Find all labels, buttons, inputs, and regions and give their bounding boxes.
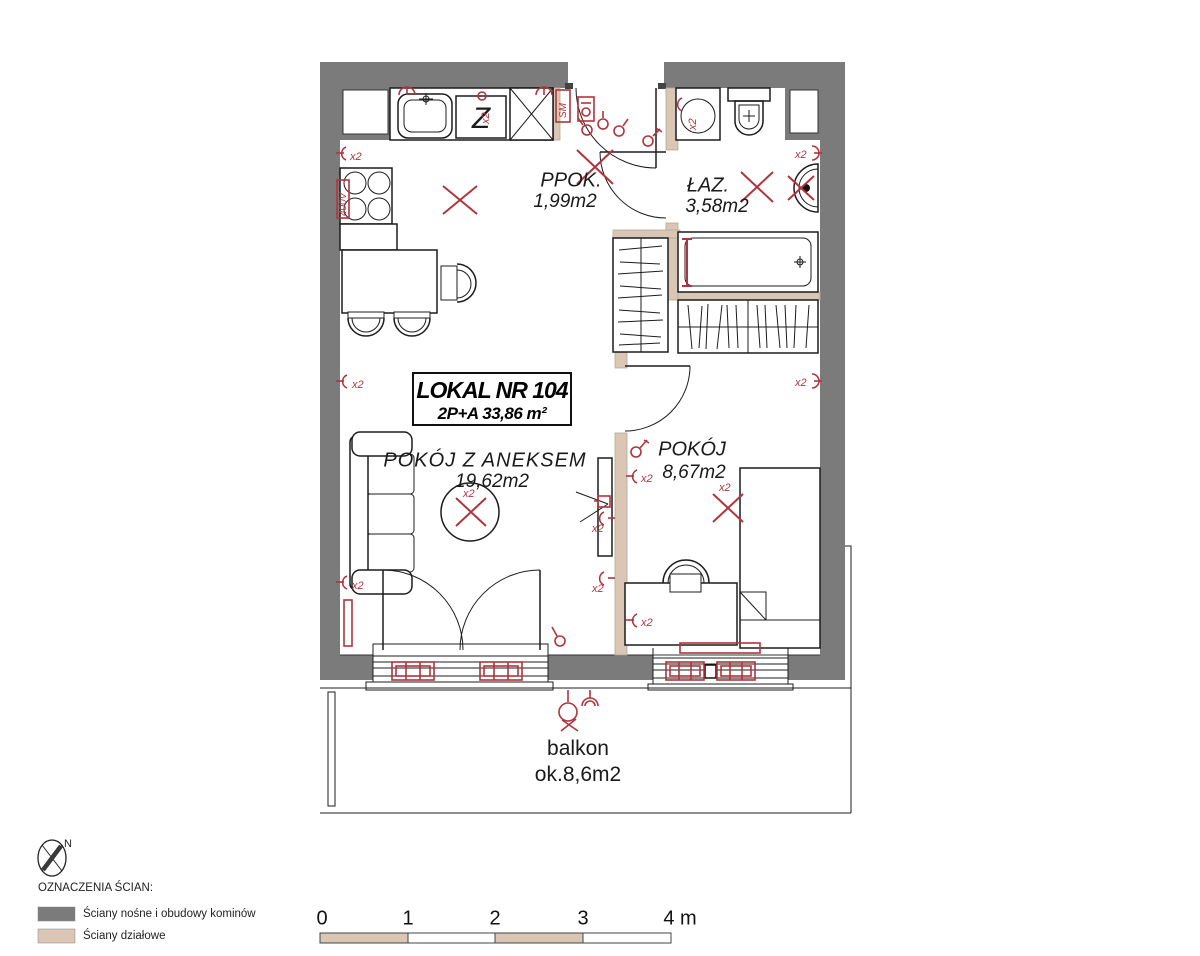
x2-label: x2 (591, 583, 604, 595)
kitchen-cabinet (340, 224, 397, 250)
bedroom-wardrobe (678, 300, 818, 353)
north-label: N (64, 838, 72, 850)
room-area-balcony: ok.8,6m2 (535, 763, 621, 787)
legend-heading: OZNACZENIA ŚCIAN: (38, 882, 153, 894)
x2-label: x2 (351, 580, 364, 592)
scale-tick-4: 4 m (663, 908, 696, 931)
door-hinge-block (658, 83, 666, 89)
door-hinge-block (565, 83, 573, 89)
x2-label: x2 (640, 617, 653, 629)
svg-text:x2: x2 (480, 112, 492, 125)
window-mullion (705, 665, 716, 678)
room-label-ppok: PPOK. (540, 170, 601, 193)
dining-chair (348, 312, 384, 336)
scale-tick-1: 1 (402, 908, 413, 931)
outlet-symbol (626, 470, 637, 483)
room-label-balcony: balkon (547, 737, 609, 761)
x2-label: x2 (794, 149, 807, 161)
balcony-lamp-symbol (559, 690, 578, 731)
outlet-cluster (578, 111, 628, 136)
kitchen-sink (398, 93, 452, 138)
bathtub (678, 232, 818, 292)
svg-text:x2: x2 (687, 118, 699, 131)
unit-subtitle: 2P+A 33,86 m² (414, 404, 570, 424)
scale-tick-3: 3 (577, 908, 588, 931)
room-area-living: 19,62m2 (455, 471, 529, 493)
shaft-niche (343, 90, 388, 134)
light-point-x (443, 186, 477, 214)
intercom-symbol (578, 97, 594, 121)
x2-label: x2 (794, 377, 807, 389)
room-area-bedroom: 8,67m2 (662, 462, 725, 484)
legend-swatches (38, 907, 75, 943)
switch-symbol (631, 440, 649, 457)
unit-title-box: LOKAL NR 104 2P+A 33,86 m² (412, 372, 572, 426)
x2-label: x2 (351, 379, 364, 391)
svg-text:400V: 400V (338, 191, 349, 216)
hall-wardrobe (613, 238, 668, 352)
room-area-laz: 3,58m2 (685, 196, 748, 218)
room-label-bedroom: POKÓJ (658, 439, 726, 462)
dining-chair (394, 312, 430, 336)
scale-bar (320, 933, 671, 943)
washbasin (676, 88, 720, 140)
legend-swatch-partition (38, 929, 75, 943)
dining-chair (441, 264, 476, 302)
room-label-living: POKÓJ Z ANEKSEM (383, 450, 586, 473)
window-sash-symbol (717, 662, 755, 680)
room-area-ppok: 1,99m2 (533, 191, 596, 213)
light-point-x (713, 494, 743, 522)
dining-table (342, 250, 437, 313)
window-sash-symbol (666, 662, 704, 680)
window-sash-symbol (480, 662, 522, 680)
x2-label: x2 (640, 473, 653, 485)
floor-plan-page: Z (0, 0, 1200, 956)
wall-sink (794, 164, 818, 212)
svg-text:SM: SM (558, 102, 569, 118)
light-point-x (456, 498, 486, 526)
legend-swatch-load-bearing (38, 907, 75, 921)
bed (740, 468, 820, 648)
scale-tick-0: 0 (316, 908, 327, 931)
scale-tick-2: 2 (489, 908, 500, 931)
balcony-lamp-symbol (582, 690, 598, 706)
toilet (728, 88, 770, 135)
shaft-niche (790, 90, 818, 133)
switch-symbol (643, 128, 662, 146)
legend-item-load-bearing: Ściany nośne i obudowy kominów (83, 908, 256, 920)
x2-label: x2 (591, 523, 604, 535)
floor-plan-drawing: Z (0, 0, 1200, 956)
bedroom-door (625, 366, 690, 431)
handle-symbol (552, 627, 565, 646)
room-label-laz: ŁAZ. (687, 175, 729, 198)
unit-title: LOKAL NR 104 (414, 377, 570, 404)
radiator (344, 600, 352, 646)
bedroom-area (625, 468, 820, 648)
washer-slot (510, 88, 553, 140)
north-arrow-icon (38, 840, 66, 876)
legend-item-partition: Ściany działowe (83, 930, 165, 942)
x2-label: x2 (349, 151, 362, 163)
balustrade-post (328, 692, 335, 806)
window-sash-symbol (392, 662, 434, 680)
